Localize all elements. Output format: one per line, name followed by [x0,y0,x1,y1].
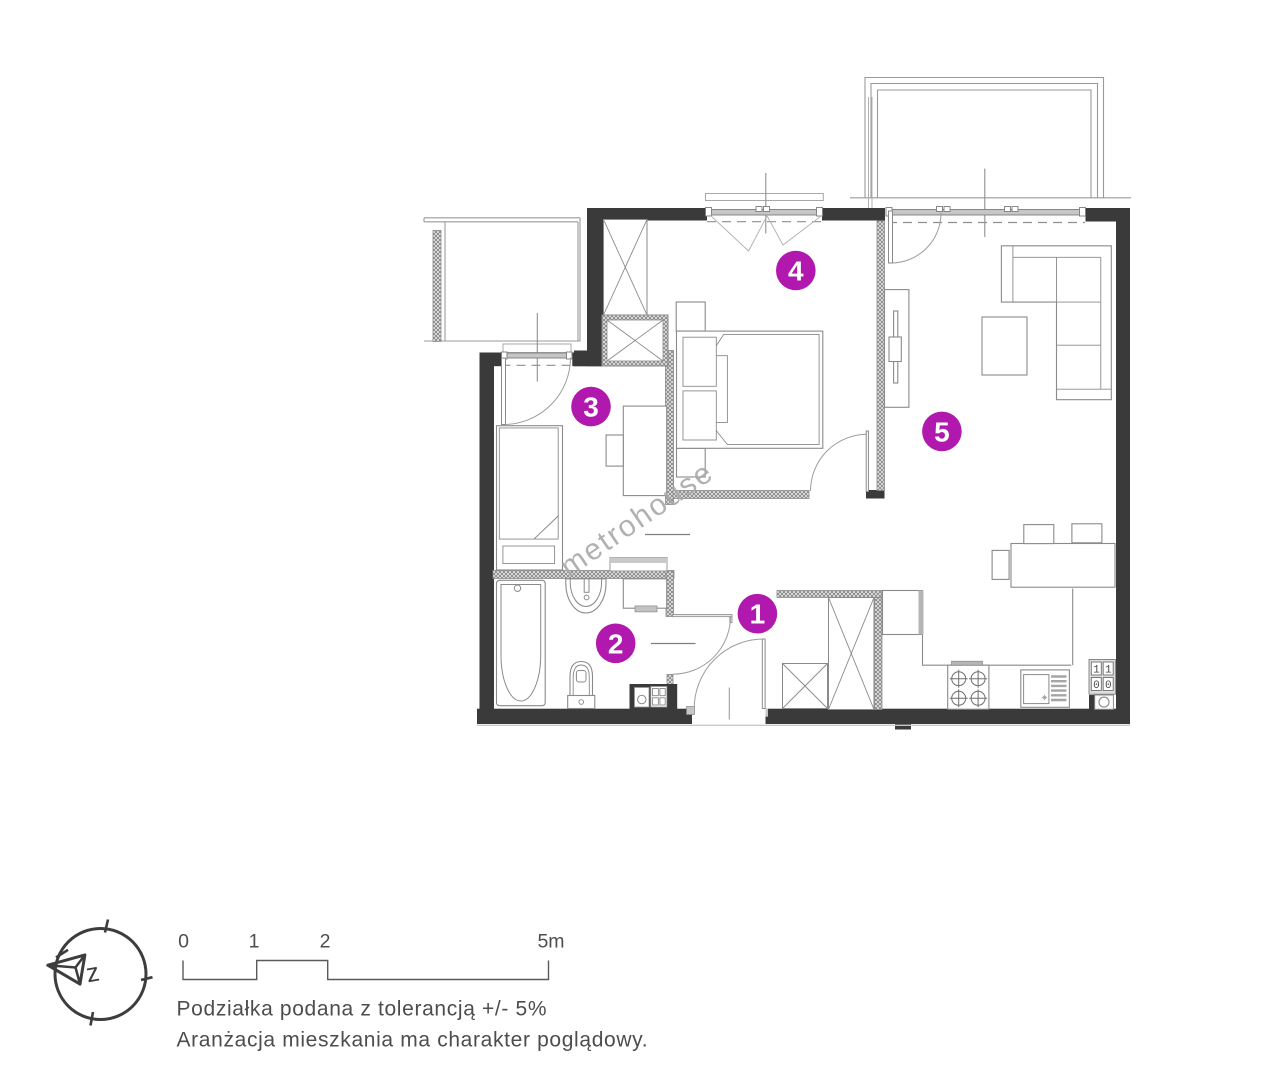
svg-text:5m: 5m [537,931,564,953]
svg-text:4: 4 [788,256,804,287]
svg-text:0: 0 [1093,680,1100,692]
svg-text:2: 2 [320,931,331,953]
svg-text:0: 0 [1105,680,1112,692]
svg-text:1: 1 [1093,665,1100,677]
svg-text:3: 3 [583,392,599,423]
svg-text:1: 1 [1105,665,1112,677]
svg-text:Aranżacja mieszkania ma charak: Aranżacja mieszkania ma charakter pogląd… [177,1029,649,1052]
svg-text:5: 5 [934,416,950,447]
svg-text:Podziałka podana z tolerancją: Podziałka podana z tolerancją +/- 5% [177,998,548,1021]
svg-text:1: 1 [750,599,766,630]
svg-text:2: 2 [608,628,624,659]
svg-text:0: 0 [178,931,189,953]
svg-text:1: 1 [249,931,260,953]
